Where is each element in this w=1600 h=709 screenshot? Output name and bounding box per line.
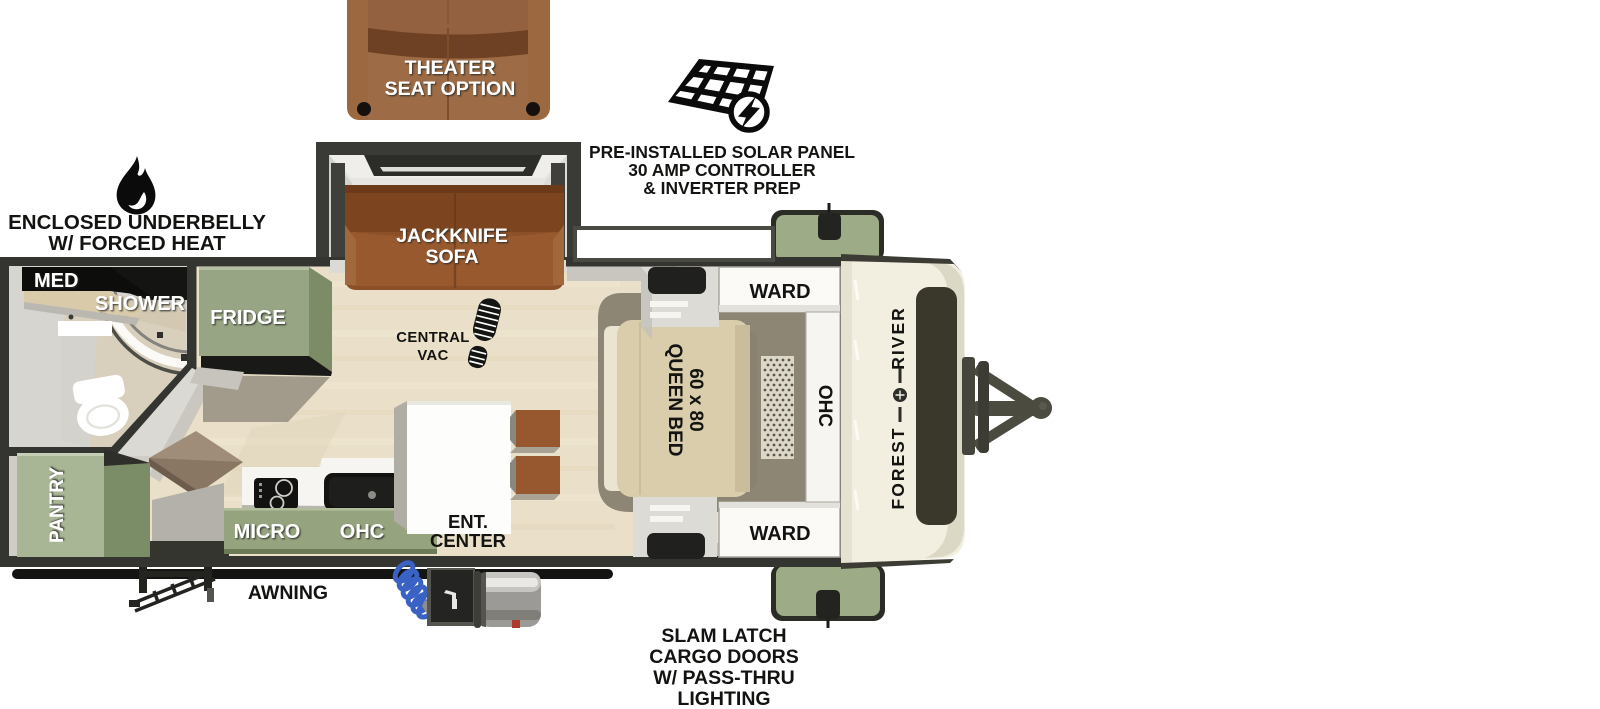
svg-text:MICRO: MICRO (234, 521, 301, 543)
svg-text:FOREST: FOREST (888, 427, 908, 510)
svg-text:VAC: VAC (417, 348, 448, 364)
svg-text:WARD: WARD (749, 523, 810, 545)
svg-text:OHC: OHC (340, 521, 384, 543)
svg-text:W/ PASS-THRU: W/ PASS-THRU (653, 667, 795, 689)
svg-text:ENT.: ENT. (448, 511, 488, 532)
svg-text:OHC: OHC (814, 385, 835, 428)
svg-text:CENTER: CENTER (430, 530, 506, 551)
svg-text:SOFA: SOFA (425, 246, 478, 268)
svg-text:WARD: WARD (749, 281, 810, 303)
svg-text:SLAM LATCH: SLAM LATCH (661, 625, 786, 647)
svg-text:JACKKNIFE: JACKKNIFE (396, 225, 508, 247)
svg-text:LIGHTING: LIGHTING (677, 688, 770, 709)
svg-text:SHOWER: SHOWER (95, 293, 186, 315)
svg-text:CENTRAL: CENTRAL (396, 330, 470, 346)
svg-text:PANTRY: PANTRY (47, 467, 68, 543)
svg-text:QUEEN BED: QUEEN BED (664, 344, 685, 457)
svg-text:ENCLOSED UNDERBELLY: ENCLOSED UNDERBELLY (8, 211, 266, 234)
svg-text:30 AMP CONTROLLER: 30 AMP CONTROLLER (628, 160, 816, 180)
svg-text:RIVER: RIVER (888, 306, 908, 369)
svg-text:& INVERTER PREP: & INVERTER PREP (643, 178, 801, 198)
svg-text:60 x 80: 60 x 80 (685, 368, 706, 431)
svg-text:AWNING: AWNING (248, 582, 328, 604)
svg-text:FRIDGE: FRIDGE (210, 307, 286, 329)
svg-text:MED: MED (34, 270, 78, 292)
svg-text:PRE-INSTALLED SOLAR PANEL: PRE-INSTALLED SOLAR PANEL (589, 142, 855, 162)
svg-text:THEATER: THEATER (405, 57, 496, 79)
svg-text:CARGO DOORS: CARGO DOORS (649, 646, 799, 668)
svg-text:SEAT OPTION: SEAT OPTION (385, 78, 516, 100)
svg-text:W/ FORCED HEAT: W/ FORCED HEAT (48, 232, 226, 255)
